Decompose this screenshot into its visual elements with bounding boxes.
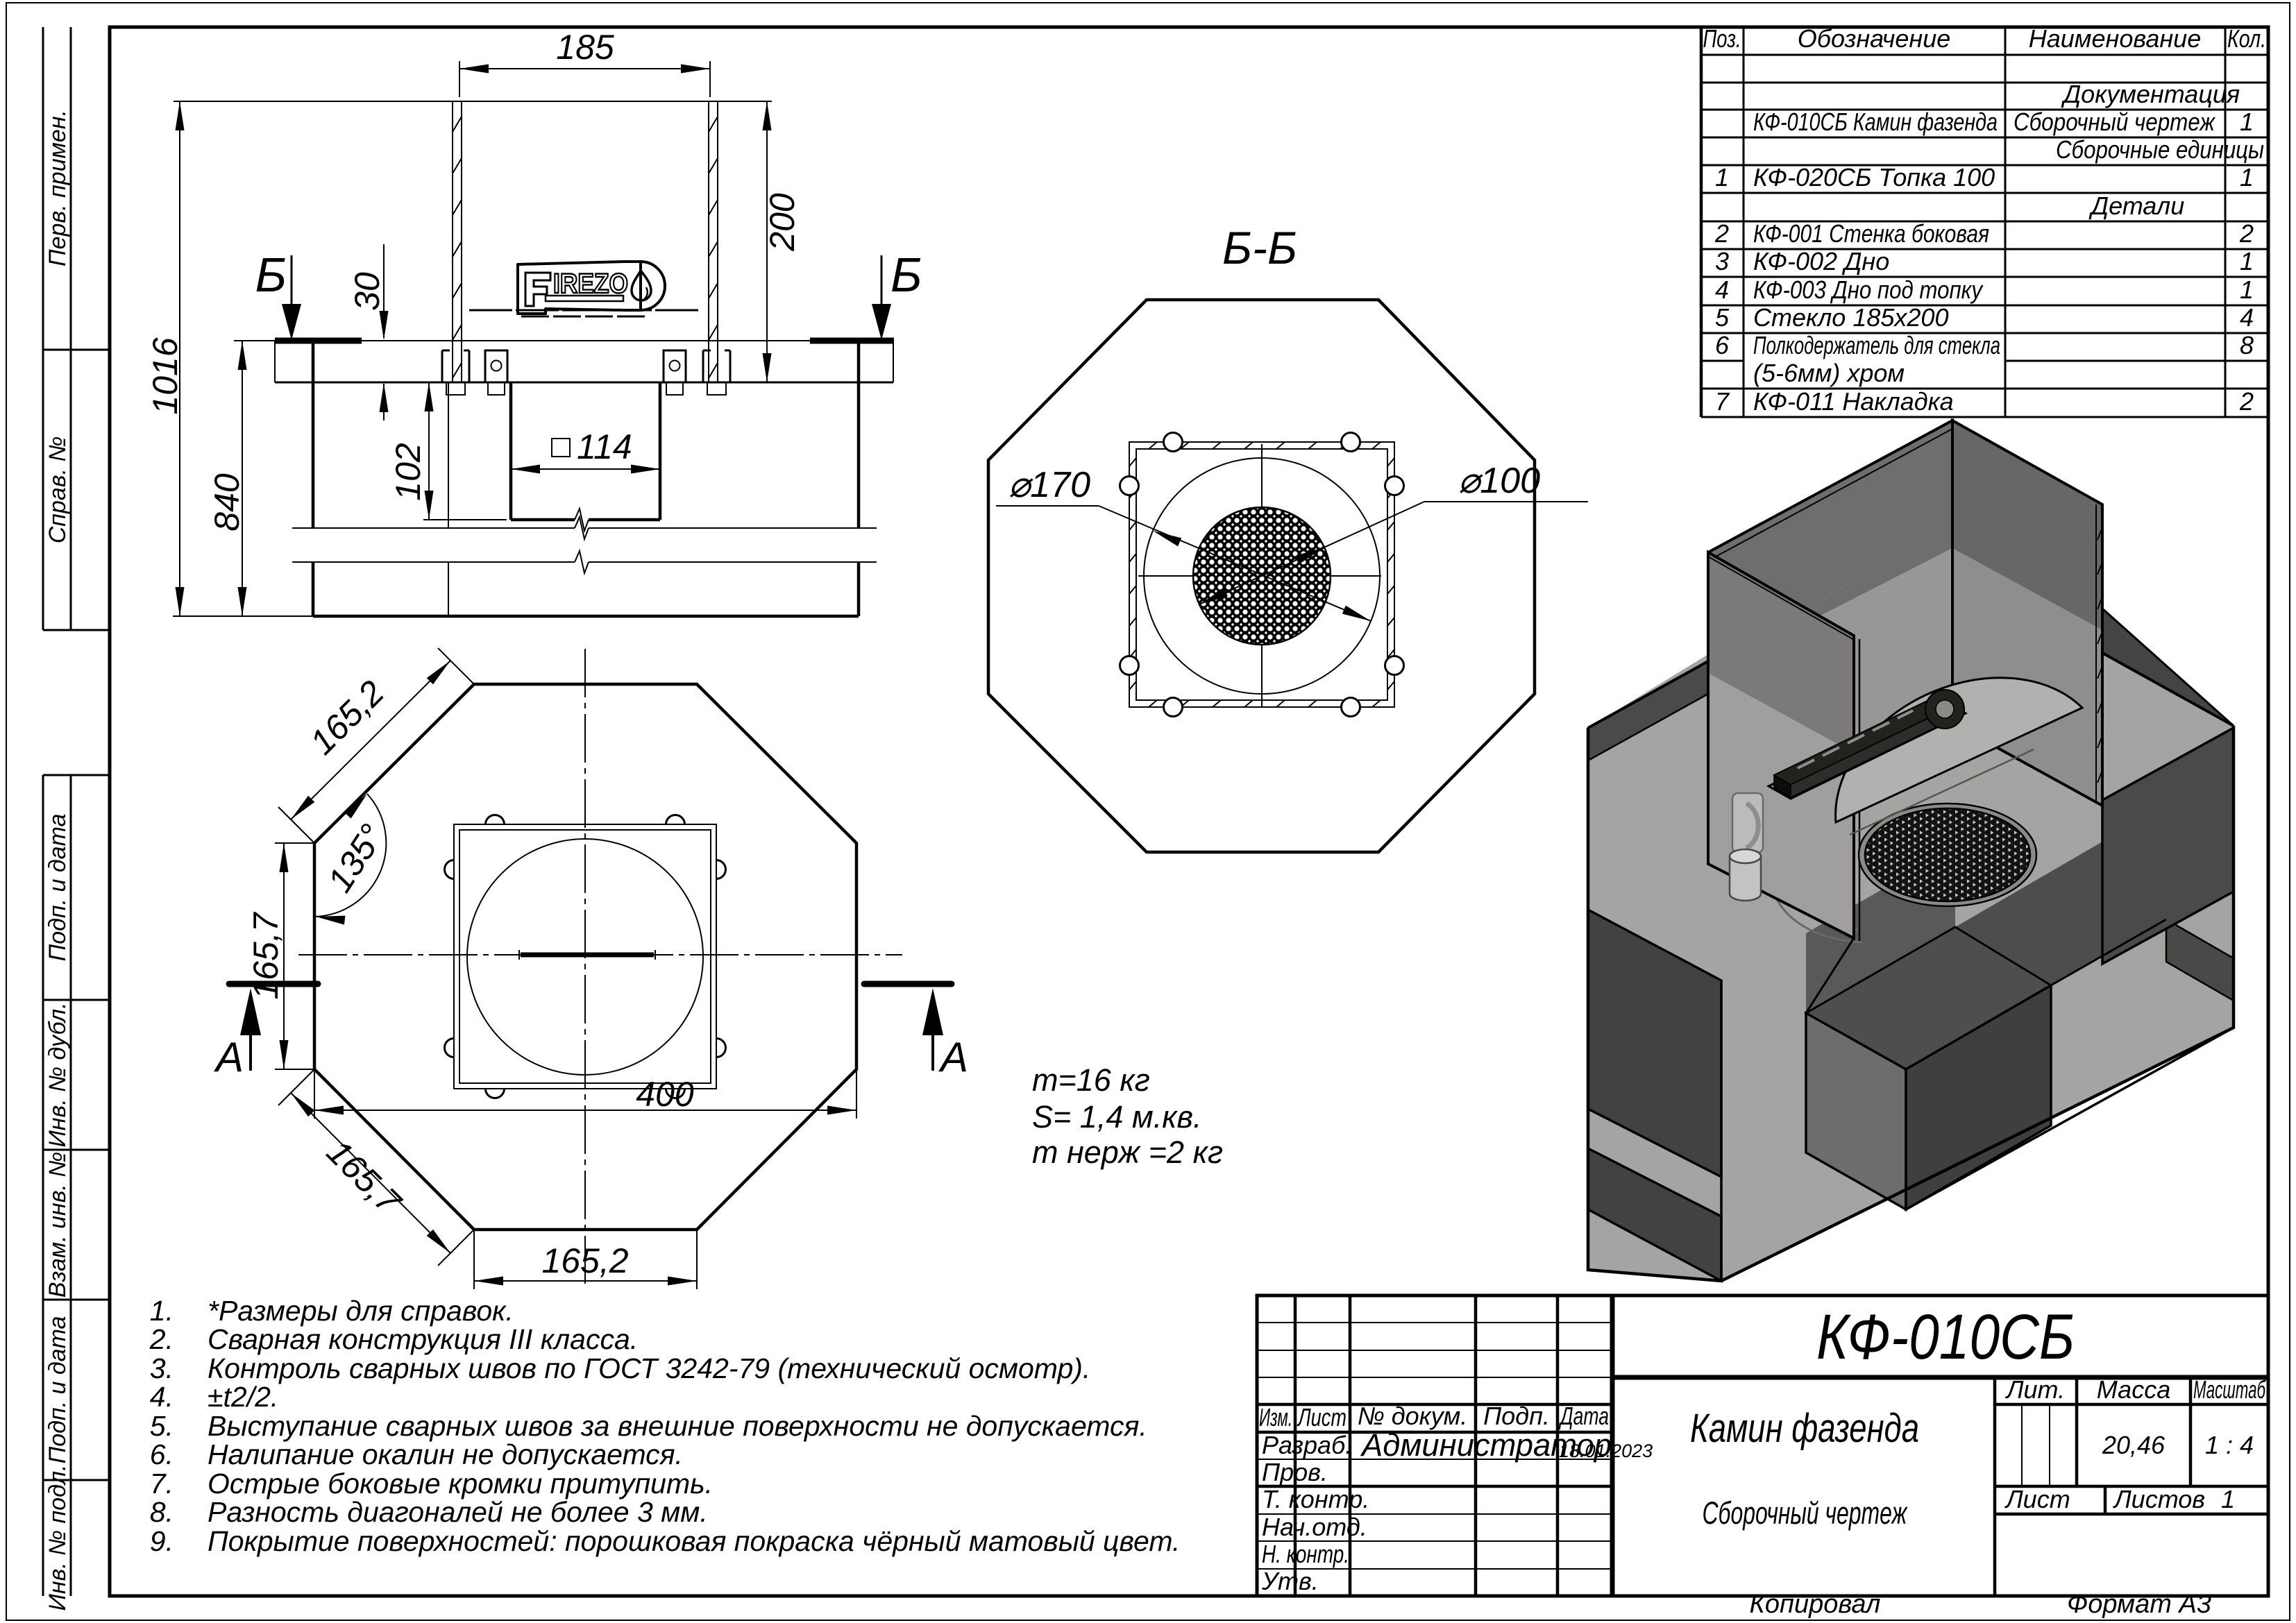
svg-text:Дата: Дата (1558, 1402, 1609, 1430)
svg-text:Перв. примен.: Перв. примен. (44, 110, 71, 266)
svg-text:Камин фазенда: Камин фазенда (1690, 1406, 1919, 1451)
svg-text:Утв.: Утв. (1261, 1567, 1319, 1595)
svg-text:Масштаб: Масштаб (2193, 1375, 2266, 1404)
svg-text:1.: 1. (150, 1295, 174, 1327)
svg-text:1016: 1016 (146, 337, 185, 414)
svg-text:2: 2 (2239, 387, 2254, 416)
svg-text:Масса: Масса (2097, 1375, 2170, 1404)
svg-text:Формат А3: Формат А3 (2067, 1590, 2211, 1619)
svg-text:4.: 4. (150, 1381, 174, 1413)
svg-text:4: 4 (1715, 275, 1729, 304)
svg-text:4: 4 (2240, 303, 2254, 332)
svg-text:3.: 3. (150, 1352, 174, 1384)
svg-text:Н. контр.: Н. контр. (1262, 1540, 1349, 1568)
svg-text:840: 840 (208, 473, 246, 532)
svg-text:Инв. № дубл.: Инв. № дубл. (44, 1002, 71, 1147)
svg-text:185: 185 (556, 28, 614, 67)
svg-text:А: А (938, 1034, 968, 1080)
svg-text:Налипание окалин не допускаетс: Налипание окалин не допускается. (208, 1438, 683, 1470)
svg-text:165,7: 165,7 (246, 911, 285, 999)
svg-text:1: 1 (2240, 247, 2254, 275)
svg-text:m нерж =2 кг: m нерж =2 кг (1032, 1135, 1223, 1170)
svg-text:5.: 5. (150, 1410, 174, 1442)
svg-text:Т. контр.: Т. контр. (1262, 1485, 1369, 1513)
svg-text:А: А (214, 1034, 244, 1080)
svg-text:S= 1,4 м.кв.: S= 1,4 м.кв. (1032, 1099, 1201, 1135)
svg-text:КФ-011 Накладка: КФ-011 Накладка (1753, 387, 1954, 416)
svg-text:1: 1 (2240, 275, 2254, 304)
svg-text:Острые боковые кромки притупит: Острые боковые кромки притупить. (208, 1468, 713, 1499)
svg-text:Контроль сварных швов по ГОСТ: Контроль сварных швов по ГОСТ 3242-79 (т… (208, 1352, 1090, 1384)
svg-text:2: 2 (2239, 219, 2254, 248)
svg-text:1: 1 (2240, 108, 2254, 136)
svg-text:КФ-020СБ Топка 100: КФ-020СБ Топка 100 (1753, 163, 1995, 192)
svg-text:Лист: Лист (2004, 1485, 2070, 1513)
svg-text:Сборочный чертеж: Сборочный чертеж (1703, 1495, 1908, 1531)
svg-text:20,46: 20,46 (2102, 1431, 2166, 1459)
svg-text:Документация: Документация (2061, 80, 2240, 108)
svg-text:1: 1 (2240, 163, 2254, 192)
svg-text:Выступание сварных швов за вне: Выступание сварных швов за внешние повер… (208, 1410, 1147, 1442)
svg-text:№ докум.: № докум. (1358, 1402, 1468, 1430)
svg-text:Разность диагоналей не более 3: Разность диагоналей не более 3 мм. (208, 1496, 708, 1528)
svg-text:Б-Б: Б-Б (1222, 222, 1297, 273)
svg-text:8: 8 (2240, 331, 2254, 359)
svg-text:⌀100: ⌀100 (1458, 461, 1540, 501)
svg-text:m=16 кг: m=16 кг (1032, 1062, 1150, 1098)
svg-text:КФ-010СБ Камин фазенда: КФ-010СБ Камин фазенда (1753, 108, 1998, 136)
svg-text:Нач.отд.: Нач.отд. (1262, 1513, 1367, 1541)
svg-text:Справ. №: Справ. № (44, 436, 71, 544)
svg-text:Пров.: Пров. (1262, 1458, 1328, 1486)
svg-text:3: 3 (1715, 247, 1729, 275)
svg-text:Обозначение: Обозначение (1798, 24, 1951, 53)
svg-text:Подп. и дата: Подп. и дата (44, 1316, 71, 1464)
svg-text:2: 2 (1714, 219, 1729, 248)
svg-text:9.: 9. (150, 1525, 174, 1557)
svg-text:7.: 7. (150, 1468, 174, 1499)
svg-text:Сборочный чертеж: Сборочный чертеж (2014, 108, 2216, 136)
svg-text:⌀170: ⌀170 (1008, 465, 1090, 505)
svg-text:Б: Б (890, 248, 922, 302)
svg-text:Изм.: Изм. (1259, 1403, 1292, 1431)
svg-text:1 : 4: 1 : 4 (2205, 1431, 2254, 1459)
svg-text:6.: 6. (150, 1438, 174, 1470)
svg-text:Б: Б (255, 248, 287, 302)
svg-text:6: 6 (1715, 331, 1730, 359)
svg-text:КФ-002 Дно: КФ-002 Дно (1753, 247, 1889, 275)
svg-text:Разраб.: Разраб. (1262, 1431, 1352, 1459)
svg-text:Лит.: Лит. (2005, 1375, 2065, 1404)
svg-text:Подп. и дата: Подп. и дата (44, 814, 71, 962)
svg-text:2.: 2. (149, 1323, 174, 1355)
svg-text:5: 5 (1715, 303, 1730, 332)
svg-text:Наименование: Наименование (2029, 24, 2201, 53)
svg-text:IREZO: IREZO (553, 269, 628, 299)
svg-text:Полкодержатель для стекла: Полкодержатель для стекла (1753, 331, 2000, 359)
svg-text:±t2/2.: ±t2/2. (208, 1381, 278, 1413)
svg-text:7: 7 (1715, 387, 1730, 416)
svg-text:30: 30 (348, 272, 387, 311)
svg-text:Лист: Лист (1297, 1403, 1347, 1431)
svg-text:КФ-001 Стенка боковая: КФ-001 Стенка боковая (1753, 219, 1989, 248)
svg-text:114: 114 (577, 427, 632, 466)
svg-text:200: 200 (763, 193, 802, 252)
svg-text:8.: 8. (150, 1496, 174, 1528)
svg-text:Сварная конструкция III класса: Сварная конструкция III класса. (208, 1323, 638, 1355)
svg-text:165,2: 165,2 (541, 1241, 628, 1280)
svg-text:Взам. инв. №: Взам. инв. № (44, 1152, 71, 1298)
svg-text:Детали: Детали (2088, 192, 2185, 220)
svg-text:Покрытие поверхностей: порошко: Покрытие поверхностей: порошковая покрас… (208, 1525, 1180, 1557)
svg-text:Листов: Листов (2113, 1485, 2205, 1513)
svg-text:(5-6мм) хром: (5-6мм) хром (1753, 359, 1905, 387)
svg-text:18.01.2023: 18.01.2023 (1559, 1441, 1653, 1461)
svg-text:Подп.: Подп. (1483, 1402, 1550, 1430)
svg-text:400: 400 (636, 1075, 694, 1114)
svg-text:Кол.: Кол. (2227, 24, 2266, 53)
svg-text:102: 102 (389, 443, 428, 501)
svg-text:КФ-003 Дно под топку: КФ-003 Дно под топку (1753, 275, 1984, 304)
svg-text:Копировал: Копировал (1750, 1590, 1881, 1619)
svg-text:*Размеры для справок.: *Размеры для справок. (208, 1295, 514, 1327)
svg-text:Поз.: Поз. (1703, 24, 1741, 53)
svg-text:1: 1 (1715, 163, 1729, 192)
svg-text:Инв. № подл.: Инв. № подл. (44, 1465, 71, 1611)
svg-text:Сборочные единицы: Сборочные единицы (2056, 135, 2264, 164)
svg-text:КФ-010СБ: КФ-010СБ (1816, 1302, 2075, 1373)
svg-text:1: 1 (2221, 1485, 2235, 1513)
svg-text:Стекло 185х200: Стекло 185х200 (1753, 303, 1948, 332)
